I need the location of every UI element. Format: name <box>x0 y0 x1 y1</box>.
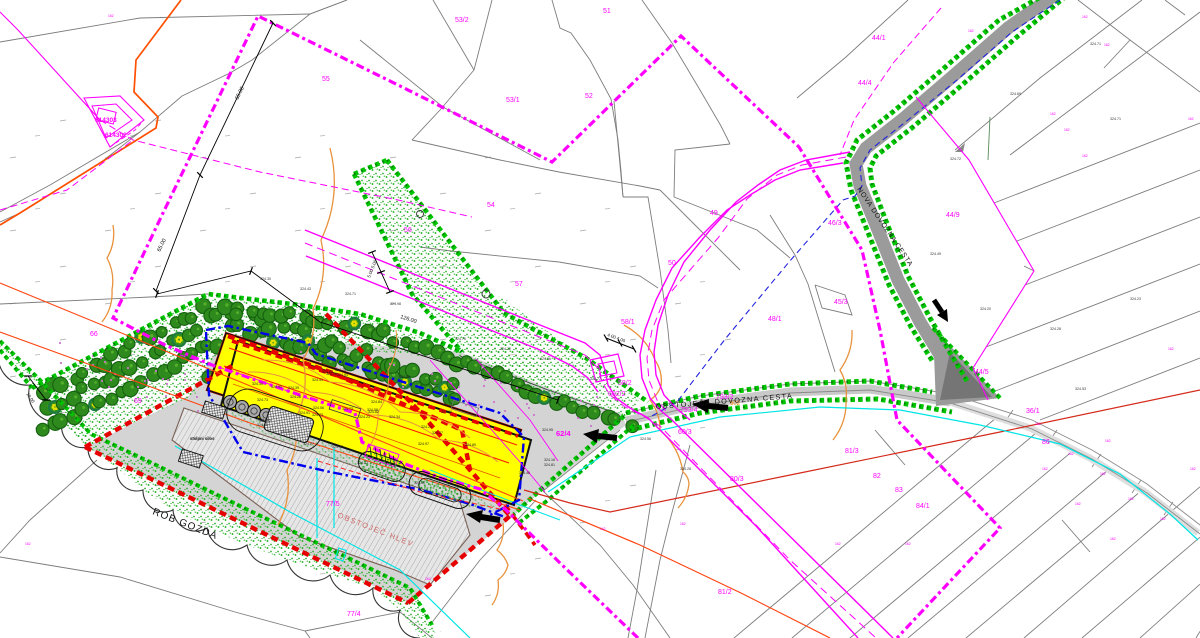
svg-text:162: 162 <box>1068 452 1074 456</box>
svg-text:52: 52 <box>585 93 593 100</box>
svg-text:324.73: 324.73 <box>257 398 268 402</box>
svg-text:162: 162 <box>1064 128 1070 132</box>
svg-text:324.90: 324.90 <box>271 385 282 389</box>
svg-text:324.30: 324.30 <box>252 382 263 386</box>
svg-text:48/1: 48/1 <box>768 316 782 323</box>
svg-text:324.46: 324.46 <box>519 471 530 475</box>
svg-text:324.53: 324.53 <box>399 375 410 379</box>
svg-text:324.12: 324.12 <box>357 461 368 465</box>
svg-text:162: 162 <box>1110 537 1116 541</box>
svg-text:324.71: 324.71 <box>1110 117 1121 121</box>
svg-text:44/4: 44/4 <box>858 80 872 87</box>
svg-text:162: 162 <box>1042 467 1048 471</box>
svg-text:162: 162 <box>108 14 114 18</box>
svg-text:162: 162 <box>1105 439 1111 443</box>
svg-text:324.12: 324.12 <box>500 347 511 351</box>
svg-text:324.20: 324.20 <box>980 307 991 311</box>
svg-text:162: 162 <box>1128 497 1134 501</box>
svg-text:stolpni silos: stolpni silos <box>190 436 215 441</box>
svg-text:324.56: 324.56 <box>313 406 324 410</box>
svg-text:324.49: 324.49 <box>930 252 941 256</box>
svg-text:81/2: 81/2 <box>718 589 732 596</box>
svg-text:46/3: 46/3 <box>828 220 842 227</box>
svg-text:58/2: 58/2 <box>618 380 632 387</box>
svg-text:324.28: 324.28 <box>290 395 301 399</box>
svg-text:324.91: 324.91 <box>299 411 310 415</box>
svg-text:69: 69 <box>134 398 142 405</box>
svg-text:324.15: 324.15 <box>280 430 291 434</box>
svg-text:162: 162 <box>600 527 606 531</box>
svg-text:57: 57 <box>515 281 523 288</box>
svg-text:45/3: 45/3 <box>834 299 848 306</box>
svg-text:162: 162 <box>1100 472 1106 476</box>
svg-text:324.75: 324.75 <box>335 368 346 372</box>
svg-text:56: 56 <box>404 227 412 234</box>
svg-text:324.37: 324.37 <box>432 431 443 435</box>
svg-text:49: 49 <box>710 210 718 217</box>
svg-text:324.93: 324.93 <box>337 373 348 377</box>
svg-text:60/3: 60/3 <box>678 429 692 436</box>
svg-text:162: 162 <box>1050 112 1056 116</box>
svg-text:80/3: 80/3 <box>730 476 744 483</box>
svg-text:324.95: 324.95 <box>542 428 553 432</box>
svg-text:324.82: 324.82 <box>368 410 379 414</box>
svg-text:84/1: 84/1 <box>916 503 930 510</box>
svg-text:324.73: 324.73 <box>312 413 323 417</box>
svg-text:324.23: 324.23 <box>359 415 370 419</box>
svg-text:66: 66 <box>90 331 98 338</box>
svg-text:324.36: 324.36 <box>540 357 551 361</box>
svg-text:324.39: 324.39 <box>288 386 299 390</box>
svg-text:162: 162 <box>1188 117 1194 121</box>
svg-text:602/2: 602/2 <box>608 391 626 398</box>
svg-text:162: 162 <box>680 522 686 526</box>
svg-text:324.21: 324.21 <box>421 425 432 429</box>
svg-text:324.77: 324.77 <box>590 377 601 381</box>
svg-text:77/5: 77/5 <box>326 501 340 508</box>
svg-text:324.89: 324.89 <box>465 443 476 447</box>
svg-text:162: 162 <box>1190 467 1196 471</box>
svg-text:162: 162 <box>1160 517 1166 521</box>
svg-text:324.16: 324.16 <box>544 458 555 462</box>
svg-text:324.98: 324.98 <box>390 302 401 306</box>
svg-text:82: 82 <box>873 473 881 480</box>
svg-text:324.65: 324.65 <box>322 370 333 374</box>
svg-text:54: 54 <box>487 202 495 209</box>
svg-text:162: 162 <box>835 542 841 546</box>
svg-text:162: 162 <box>1035 422 1041 426</box>
svg-text:162: 162 <box>1104 43 1110 47</box>
svg-text:81/3: 81/3 <box>845 448 859 455</box>
svg-text:77/4: 77/4 <box>347 611 361 618</box>
svg-text:324.41: 324.41 <box>312 378 323 382</box>
svg-text:162: 162 <box>25 542 31 546</box>
svg-text:162: 162 <box>425 577 431 581</box>
svg-text:44/5: 44/5 <box>975 369 989 376</box>
svg-text:324.84: 324.84 <box>371 400 382 404</box>
svg-text:51: 51 <box>603 8 611 15</box>
svg-text:324.53: 324.53 <box>1075 387 1086 391</box>
svg-text:36/1: 36/1 <box>1026 408 1040 415</box>
svg-text:62/4: 62/4 <box>556 429 571 438</box>
svg-text:324.28: 324.28 <box>680 467 691 471</box>
svg-text:55: 55 <box>322 76 330 83</box>
svg-text:324.73: 324.73 <box>342 407 353 411</box>
svg-text:324.71: 324.71 <box>1090 42 1101 46</box>
svg-text:162: 162 <box>905 542 911 546</box>
svg-text:162: 162 <box>1082 15 1088 19</box>
svg-text:162: 162 <box>968 29 974 33</box>
svg-text:324.97: 324.97 <box>332 445 343 449</box>
svg-text:614303: 614303 <box>95 117 117 124</box>
svg-text:324.43: 324.43 <box>300 287 311 291</box>
svg-text:324.34: 324.34 <box>389 415 400 419</box>
svg-text:162: 162 <box>1168 347 1174 351</box>
svg-text:614302: 614302 <box>105 132 127 139</box>
svg-text:44/9: 44/9 <box>946 212 960 219</box>
svg-text:86: 86 <box>1042 439 1050 446</box>
svg-text:324.56: 324.56 <box>640 437 651 441</box>
svg-text:324.71: 324.71 <box>345 292 356 296</box>
svg-text:53/2: 53/2 <box>455 17 469 24</box>
svg-text:324.80: 324.80 <box>441 410 452 414</box>
svg-text:162: 162 <box>1082 154 1088 158</box>
svg-text:324.76: 324.76 <box>455 337 466 341</box>
svg-text:162: 162 <box>1075 502 1081 506</box>
svg-text:324.72: 324.72 <box>950 157 961 161</box>
svg-text:50: 50 <box>668 260 676 267</box>
svg-text:44/1: 44/1 <box>872 35 886 42</box>
svg-text:58/1: 58/1 <box>621 319 635 326</box>
svg-text:324.30: 324.30 <box>260 277 271 281</box>
svg-text:324.97: 324.97 <box>418 442 429 446</box>
svg-text:324.50: 324.50 <box>414 481 425 485</box>
svg-text:53/1: 53/1 <box>506 97 520 104</box>
svg-text:324.27: 324.27 <box>303 442 314 446</box>
svg-text:324.81: 324.81 <box>544 463 555 467</box>
svg-text:324.69: 324.69 <box>1010 92 1021 96</box>
svg-text:324.28: 324.28 <box>1050 327 1061 331</box>
svg-text:83: 83 <box>895 487 903 494</box>
svg-text:324.80: 324.80 <box>257 423 268 427</box>
svg-text:324.23: 324.23 <box>1130 297 1141 301</box>
